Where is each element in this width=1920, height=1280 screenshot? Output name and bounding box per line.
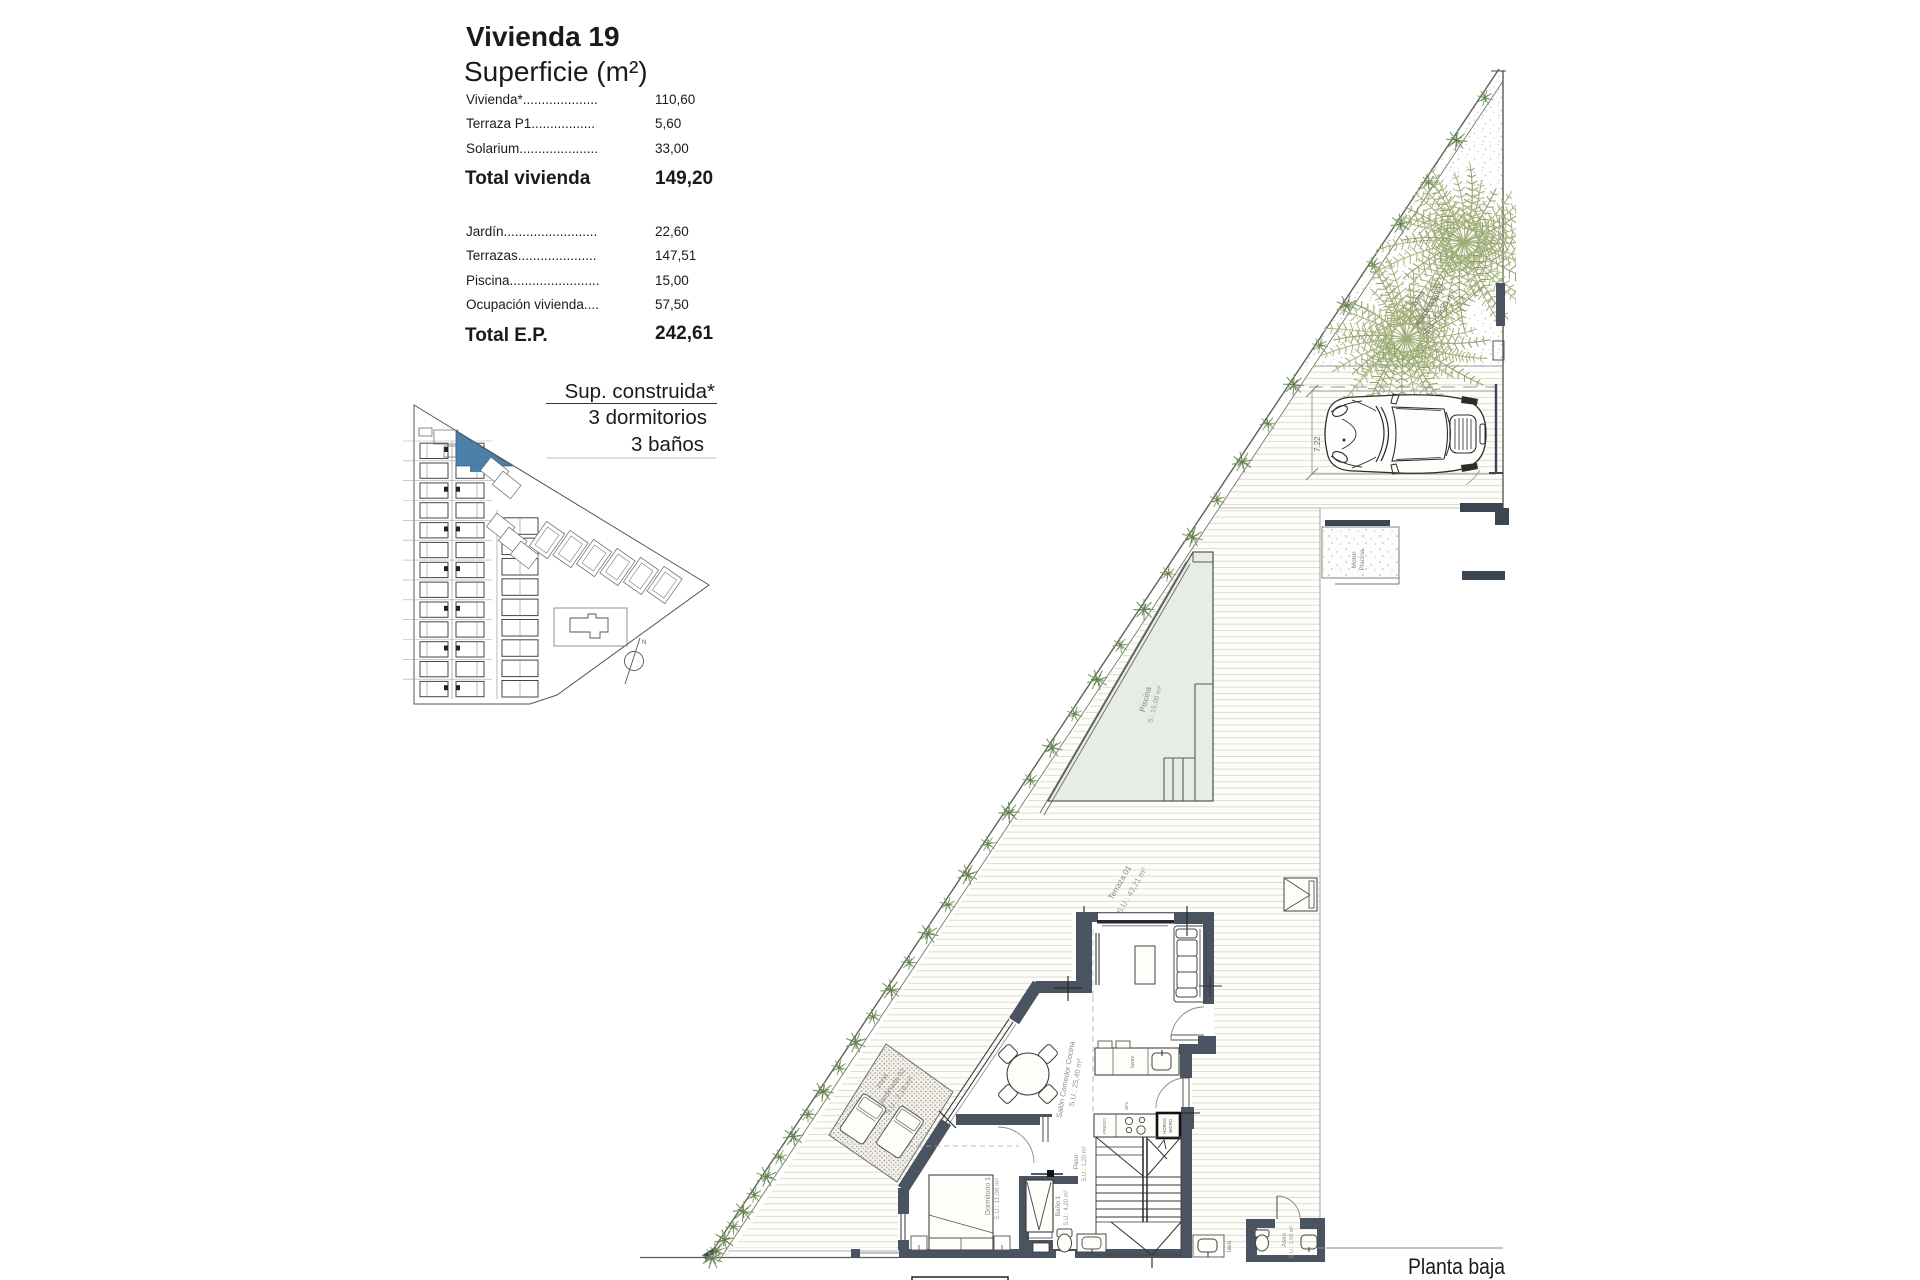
svg-text:Dormitorio 1: Dormitorio 1 — [985, 1177, 992, 1215]
svg-text:Aseo: Aseo — [1282, 1233, 1288, 1247]
svg-text:S.U.: 4,20 m²: S.U.: 4,20 m² — [1064, 1190, 1070, 1225]
svg-text:5,60: 5,60 — [655, 116, 681, 131]
svg-text:MICRO: MICRO — [1168, 1118, 1173, 1133]
svg-text:FREGO: FREGO — [1102, 1118, 1107, 1135]
svg-text:Baño 1: Baño 1 — [1055, 1195, 1062, 1216]
svg-text:15,00: 15,00 — [655, 273, 689, 288]
svg-text:S.U.: 1,50 m²: S.U.: 1,50 m² — [1289, 1226, 1295, 1259]
svg-text:Jardín........................: Jardín......................... — [466, 224, 597, 239]
svg-text:Planta baja: Planta baja — [1408, 1254, 1506, 1279]
svg-text:Terraza P1.................: Terraza P1................. — [466, 116, 595, 131]
svg-text:7.22: 7.22 — [1313, 436, 1322, 452]
svg-text:Solarium.....................: Solarium..................... — [466, 141, 598, 156]
svg-text:149,20: 149,20 — [655, 168, 713, 189]
svg-text:Superficie (m²): Superficie (m²) — [464, 56, 648, 87]
svg-text:Vivienda 19: Vivienda 19 — [466, 21, 620, 52]
svg-text:33,00: 33,00 — [655, 141, 689, 156]
svg-text:lavav: lavav — [1130, 1056, 1136, 1068]
svg-text:Sup. construida*: Sup. construida* — [565, 380, 715, 403]
svg-text:S.U.: 1,20 m²: S.U.: 1,20 m² — [1082, 1146, 1088, 1181]
svg-text:Terrazas.....................: Terrazas..................... — [466, 248, 597, 263]
svg-text:Piscina: Piscina — [1359, 549, 1366, 570]
svg-text:S.U.: 11,00 m²: S.U.: 11,00 m² — [994, 1177, 1001, 1219]
svg-text:242,61: 242,61 — [655, 323, 714, 344]
svg-text:110,60: 110,60 — [655, 92, 695, 107]
svg-text:Total E.P.: Total E.P. — [465, 325, 548, 346]
svg-text:147,51: 147,51 — [655, 248, 696, 263]
svg-text:N: N — [642, 640, 646, 646]
svg-text:lava: lava — [1227, 1240, 1233, 1252]
svg-text:Motor: Motor — [1351, 551, 1358, 568]
svg-text:Vivienda*....................: Vivienda*.................... — [466, 92, 598, 107]
svg-text:57,50: 57,50 — [655, 297, 689, 312]
svg-text:22,60: 22,60 — [655, 224, 689, 239]
svg-text:MINI: MINI — [1124, 1102, 1129, 1111]
svg-text:Paso: Paso — [1073, 1154, 1080, 1169]
svg-text:3 dormitorios: 3 dormitorios — [589, 406, 708, 429]
svg-text:Total vivienda: Total vivienda — [465, 168, 591, 189]
svg-text:3 baños: 3 baños — [631, 433, 704, 456]
svg-text:HORNO: HORNO — [1162, 1117, 1167, 1133]
svg-text:Piscina.......................: Piscina........................ — [466, 273, 600, 288]
svg-text:Ocupación vivienda....: Ocupación vivienda.... — [466, 297, 599, 312]
